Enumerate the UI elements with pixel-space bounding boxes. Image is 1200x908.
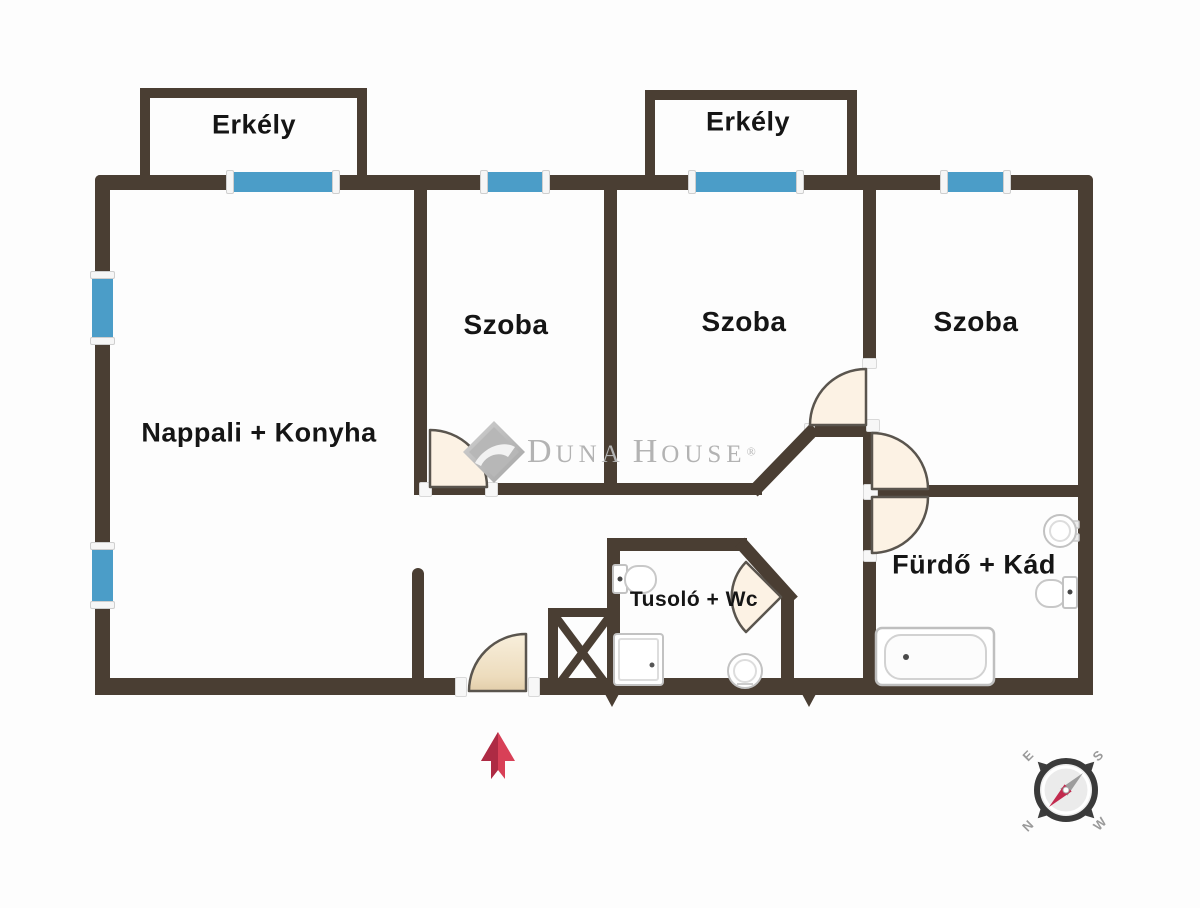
bathtub-icon: [876, 628, 994, 685]
dunahouse-logo-text: DUNAHOUSE®: [527, 433, 756, 471]
logo-registered-mark: ®: [747, 445, 756, 459]
compass-east-label: E: [1019, 747, 1036, 764]
entrance-arrow-icon: [481, 732, 515, 779]
shaft-cross: [553, 613, 612, 692]
floor-plan: E S W N Erkély Erkély Nappali + Konyha S…: [0, 0, 1200, 908]
door-szoba2: [810, 369, 866, 425]
washbasin-icon: [728, 654, 762, 688]
room-label-tusolo: Tusoló + Wc: [630, 588, 758, 612]
room-label-szoba3: Szoba: [934, 306, 1019, 338]
wall-notches: [605, 694, 816, 707]
room-label-szoba2: Szoba: [702, 306, 787, 338]
washbasin-icon: [1044, 515, 1079, 547]
room-label-nappali: Nappali + Konyha: [141, 418, 376, 449]
logo-word2-rest: OUSE: [661, 441, 746, 468]
compass-icon: E S W N: [1009, 733, 1122, 846]
compass-north-label: N: [1019, 817, 1036, 834]
balcony-label: Erkély: [706, 107, 790, 138]
toilet-icon: [1036, 577, 1077, 608]
shower-icon: [614, 634, 663, 685]
logo-word1-rest: UNA: [556, 441, 625, 468]
logo-word1-initial: D: [527, 433, 556, 470]
room-label-szoba1: Szoba: [464, 309, 549, 341]
logo-word2-initial: H: [633, 433, 662, 470]
wall-hall-diagonal: [753, 428, 815, 492]
door-swings: [430, 369, 928, 691]
door-entrance: [469, 634, 526, 691]
room-label-furdo: Fürdő + Kád: [892, 550, 1056, 581]
door-furdo: [872, 497, 928, 553]
door-szoba3: [872, 433, 928, 489]
compass-south-label: S: [1089, 747, 1106, 764]
balcony-label: Erkély: [212, 110, 296, 141]
